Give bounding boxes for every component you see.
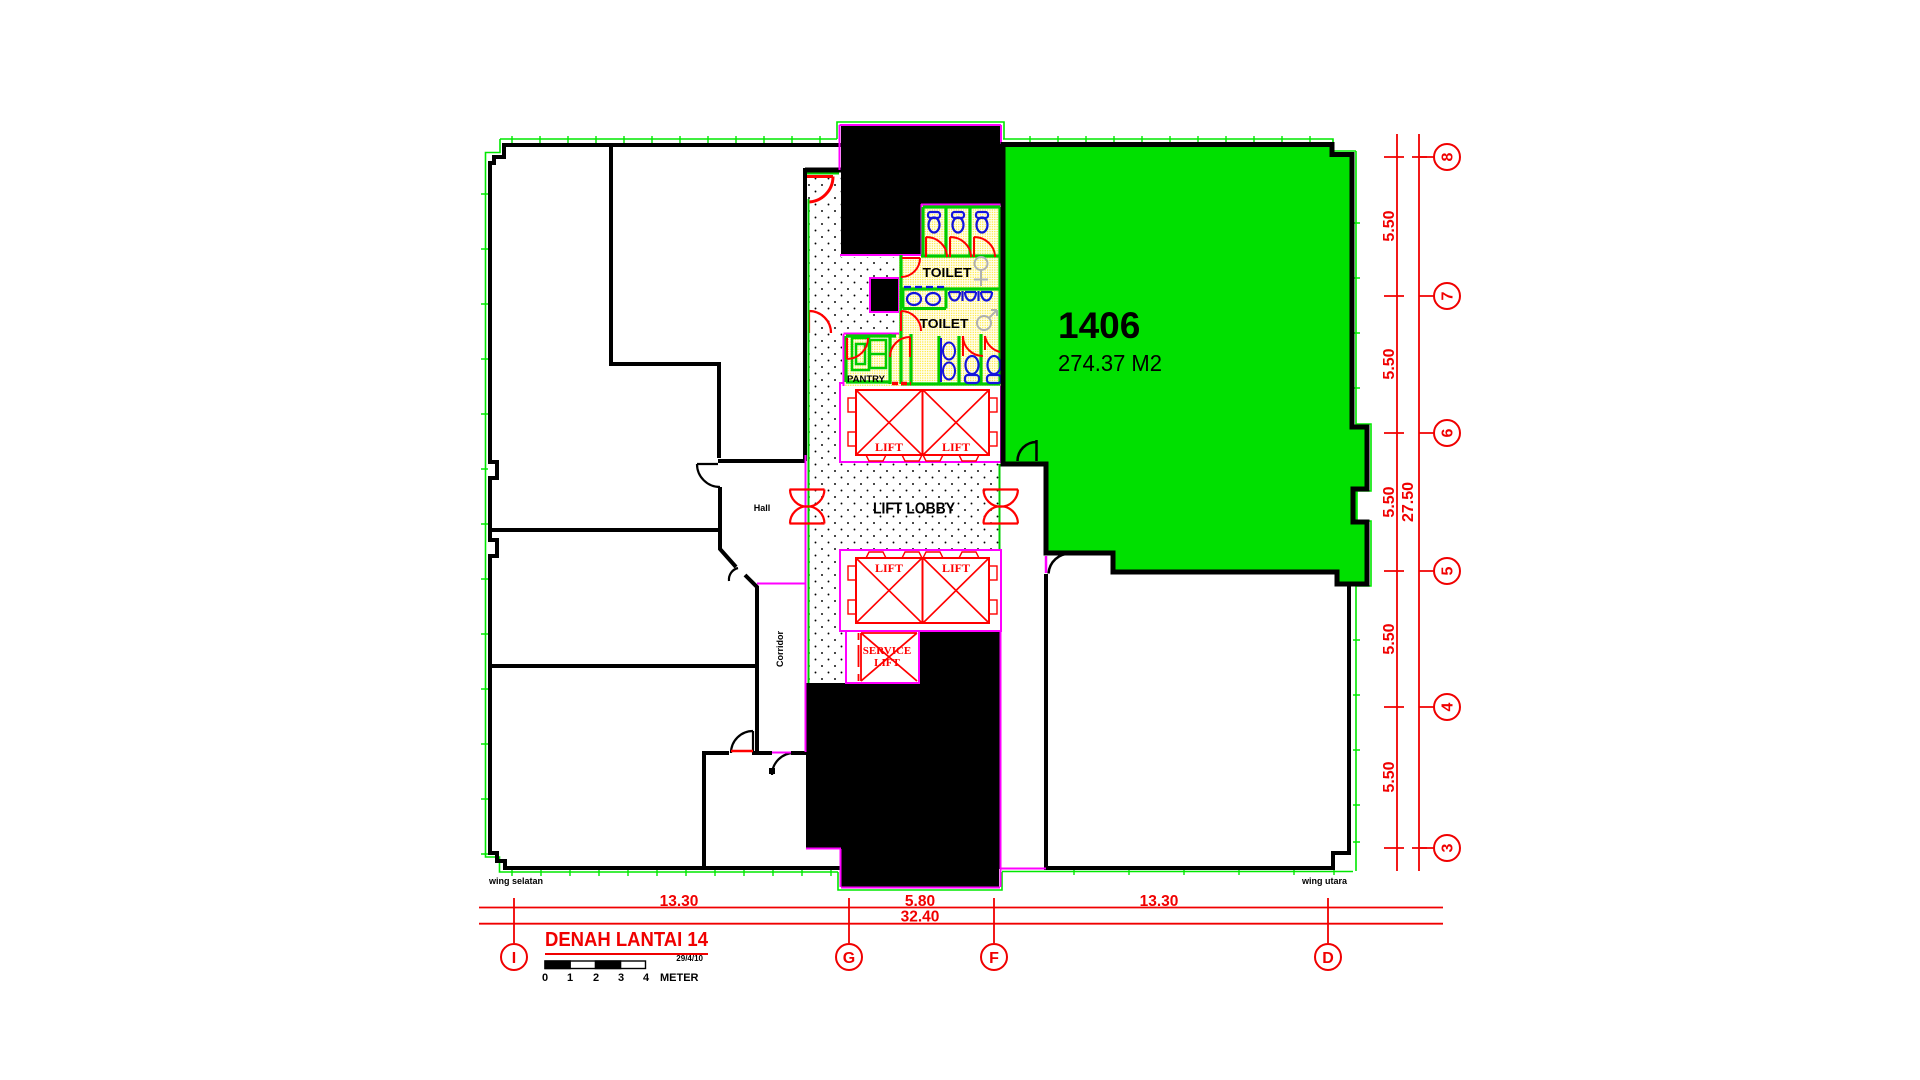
svg-text:1406: 1406 bbox=[1058, 305, 1140, 346]
svg-text:32.40: 32.40 bbox=[901, 909, 940, 926]
svg-text:5: 5 bbox=[1440, 566, 1457, 575]
svg-text:5.50: 5.50 bbox=[1381, 486, 1398, 517]
svg-text:29/4/10: 29/4/10 bbox=[676, 954, 703, 963]
svg-text:LIFT LOBBY: LIFT LOBBY bbox=[873, 501, 955, 518]
svg-text:13.30: 13.30 bbox=[660, 893, 699, 910]
svg-text:5.80: 5.80 bbox=[905, 893, 935, 910]
svg-text:5.50: 5.50 bbox=[1381, 623, 1398, 654]
svg-text:3: 3 bbox=[1440, 843, 1457, 852]
svg-text:0: 0 bbox=[542, 972, 548, 984]
svg-text:LIFT: LIFT bbox=[875, 440, 903, 454]
svg-text:Corridor: Corridor bbox=[775, 631, 785, 667]
svg-text:27.50: 27.50 bbox=[1400, 482, 1417, 522]
svg-text:TOILET: TOILET bbox=[920, 317, 969, 331]
svg-text:D: D bbox=[1322, 950, 1334, 967]
svg-text:LIFT: LIFT bbox=[942, 440, 970, 454]
svg-text:wing utara: wing utara bbox=[1301, 876, 1348, 886]
svg-text:G: G bbox=[843, 950, 855, 967]
svg-text:LIFT: LIFT bbox=[874, 657, 900, 669]
svg-text:274.37 M2: 274.37 M2 bbox=[1058, 350, 1162, 376]
svg-text:F: F bbox=[989, 950, 999, 967]
svg-text:METER: METER bbox=[660, 972, 699, 984]
svg-text:5.50: 5.50 bbox=[1381, 348, 1398, 379]
svg-text:DENAH LANTAI 14: DENAH LANTAI 14 bbox=[545, 929, 709, 951]
svg-text:13.30: 13.30 bbox=[1140, 893, 1179, 910]
svg-text:I: I bbox=[512, 950, 516, 967]
svg-text:7: 7 bbox=[1440, 291, 1457, 300]
svg-text:LIFT: LIFT bbox=[875, 561, 903, 575]
svg-text:2: 2 bbox=[593, 972, 599, 984]
svg-text:4: 4 bbox=[643, 972, 650, 984]
svg-text:5.50: 5.50 bbox=[1381, 761, 1398, 792]
svg-text:1: 1 bbox=[567, 972, 573, 984]
svg-text:SERVICE: SERVICE bbox=[863, 645, 912, 657]
svg-text:LIFT: LIFT bbox=[942, 561, 970, 575]
svg-text:4: 4 bbox=[1440, 702, 1457, 711]
svg-text:3: 3 bbox=[618, 972, 624, 984]
svg-text:8: 8 bbox=[1440, 152, 1457, 161]
svg-text:6: 6 bbox=[1440, 428, 1457, 437]
svg-text:wing selatan: wing selatan bbox=[488, 876, 543, 886]
svg-text:Hall: Hall bbox=[754, 503, 771, 513]
svg-text:TOILET: TOILET bbox=[923, 266, 972, 280]
svg-text:5.50: 5.50 bbox=[1381, 210, 1398, 241]
svg-text:PANTRY: PANTRY bbox=[847, 374, 886, 385]
